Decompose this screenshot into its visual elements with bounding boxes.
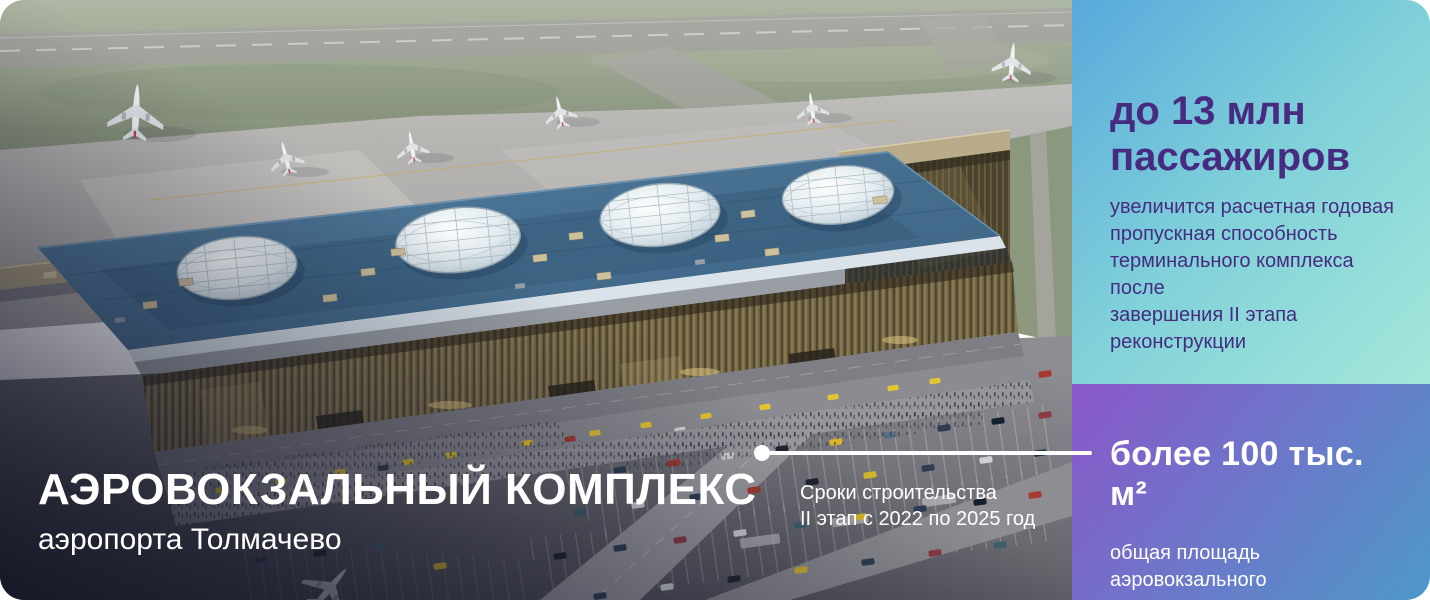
stat-area-description: общая площадь аэровокзального комплекса … xyxy=(1110,540,1408,600)
infographic-slide: АЭРОВОКЗАЛЬНЫЙ КОМПЛЕКС аэропорта Толмач… xyxy=(0,0,1430,600)
stat-passengers-description: увеличится расчетная годовая пропускная … xyxy=(1110,194,1404,356)
stat-passengers-panel: до 13 млн пассажиров увеличится расчетна… xyxy=(1072,0,1430,384)
construction-dates-line2: II этап с 2022 по 2025 год xyxy=(800,506,1035,532)
callout-dot xyxy=(754,445,770,461)
page-title: АЭРОВОКЗАЛЬНЫЙ КОМПЛЕКС xyxy=(38,466,757,514)
airport-render: АЭРОВОКЗАЛЬНЫЙ КОМПЛЕКС аэропорта Толмач… xyxy=(0,0,1072,600)
construction-dates-line1: Сроки строительства xyxy=(800,480,1035,506)
page-subtitle: аэропорта Толмачево xyxy=(38,522,757,558)
title-block: АЭРОВОКЗАЛЬНЫЙ КОМПЛЕКС аэропорта Толмач… xyxy=(38,466,757,558)
construction-dates: Сроки строительства II этап с 2022 по 20… xyxy=(800,480,1035,532)
callout-line xyxy=(762,451,1092,455)
stat-area-value: более 100 тыс. м² xyxy=(1110,434,1408,514)
stat-passengers-value: до 13 млн пассажиров xyxy=(1110,88,1404,180)
stat-area-panel: более 100 тыс. м² общая площадь аэровокз… xyxy=(1072,384,1430,600)
